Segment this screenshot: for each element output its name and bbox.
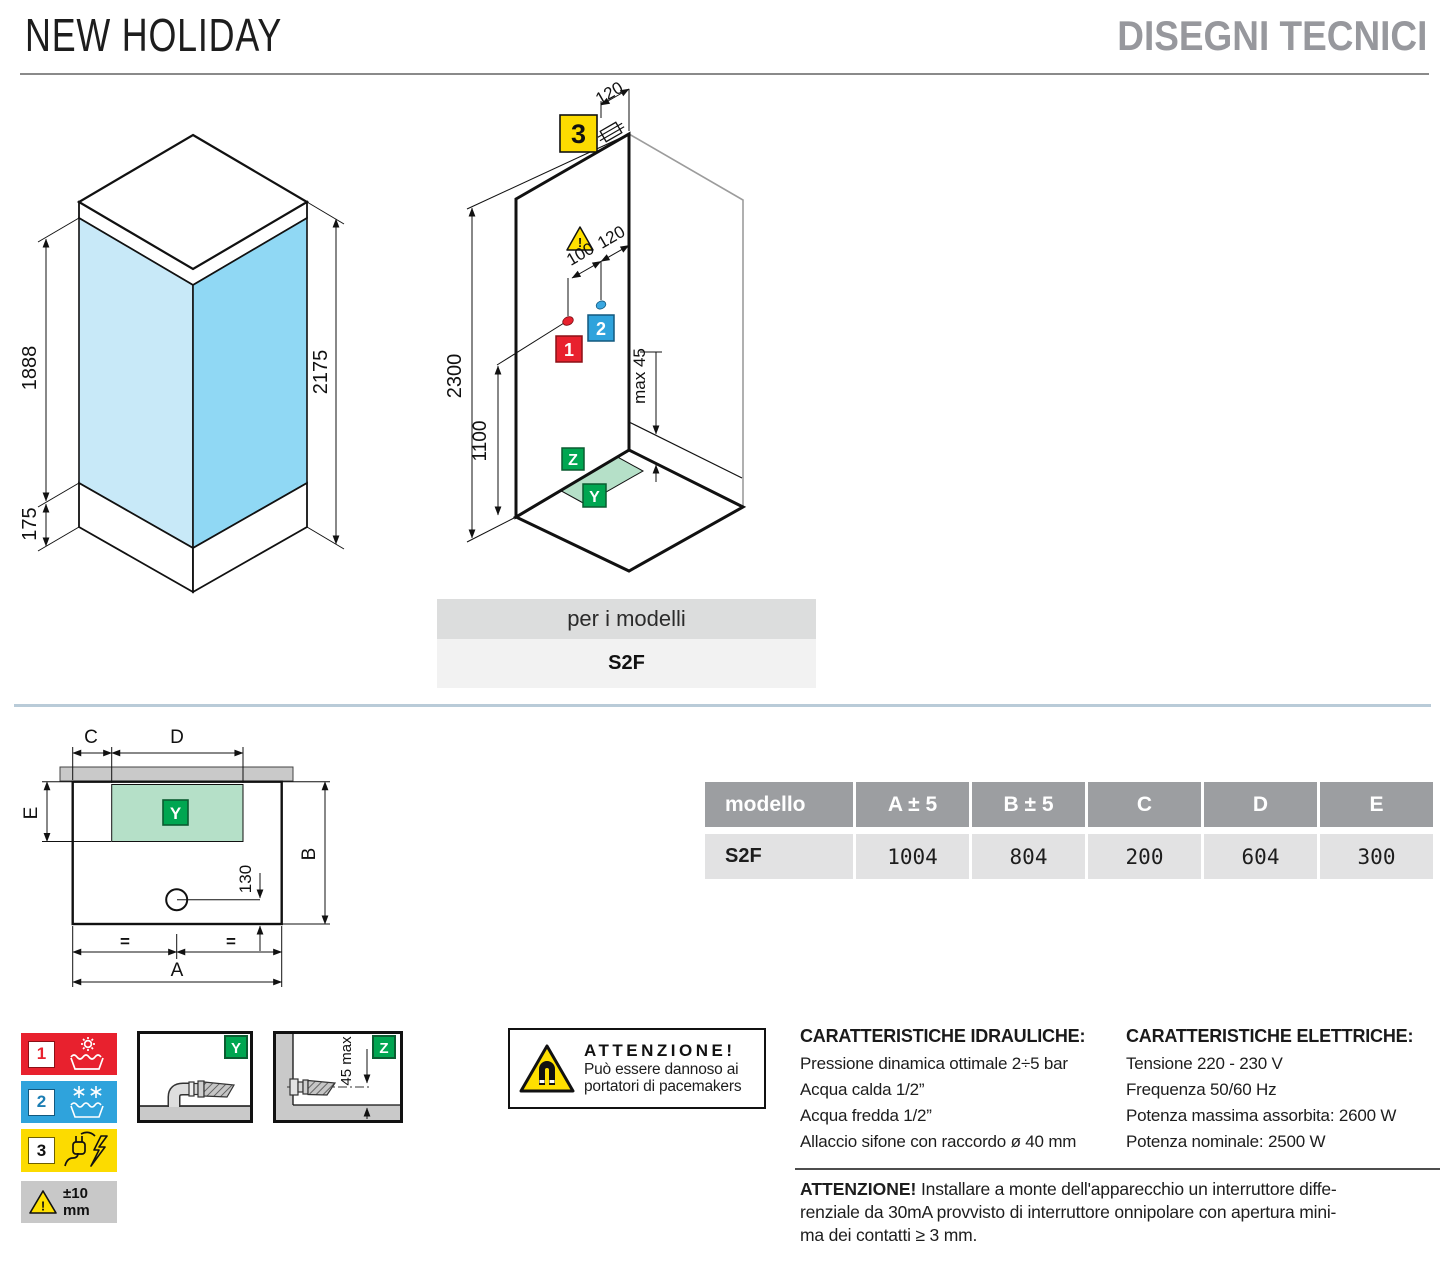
middle-divider bbox=[14, 704, 1431, 707]
z-connection-detail: 45 max Z bbox=[273, 1031, 403, 1123]
dim-drain-label: 130 bbox=[236, 865, 255, 893]
magnet-warning-icon bbox=[518, 1043, 576, 1095]
plan-view-drawing: Y C D E B 130 = = A bbox=[25, 723, 365, 1008]
hydraulic-spec-line: Acqua fredda 1/2” bbox=[800, 1103, 1130, 1129]
models-box-model: S2F bbox=[437, 639, 816, 688]
hydraulic-spec-line: Pressione dinamica ottimale 2÷5 bar bbox=[800, 1051, 1130, 1077]
electric-plug-icon bbox=[61, 1132, 113, 1170]
dim-electric-offset: 120 bbox=[592, 78, 626, 109]
dim-e-label: E bbox=[21, 807, 42, 820]
size-table: modello A ± 5 B ± 5 C D E S2F 1004 804 2… bbox=[705, 782, 1433, 879]
electrical-spec-line: Frequenza 50/60 Hz bbox=[1126, 1077, 1444, 1103]
floor-zone-badge-label: Y bbox=[589, 489, 600, 506]
legend-cold-number: 2 bbox=[28, 1089, 55, 1116]
y-connection-detail: Y bbox=[137, 1031, 253, 1123]
table-cell-b: 804 bbox=[972, 834, 1085, 879]
dim-glass-height: 1888 bbox=[19, 346, 41, 391]
dim-c-label: C bbox=[84, 727, 98, 748]
electrical-specs: CARATTERISTICHE ELETTRICHE: Tensione 220… bbox=[1126, 1026, 1444, 1155]
wall-zone-badge-label: Z bbox=[568, 452, 578, 469]
dim-wall-height: 2300 bbox=[444, 354, 466, 399]
table-header-a: A ± 5 bbox=[856, 782, 969, 827]
header-divider bbox=[20, 73, 1429, 75]
cabin-isometric-drawing: 1888 175 2175 bbox=[25, 100, 400, 615]
magnet-warning-line2: portatori di pacemakers bbox=[584, 1078, 741, 1095]
legend-hot-water: 1 bbox=[21, 1033, 117, 1075]
dim-a-label: A bbox=[171, 960, 184, 981]
models-box-label: per i modelli bbox=[437, 599, 816, 639]
hydraulic-spec-line: Acqua calda 1/2” bbox=[800, 1077, 1130, 1103]
table-header-c: C bbox=[1088, 782, 1201, 827]
table-header-modello: modello bbox=[705, 782, 853, 827]
hot-badge-label: 1 bbox=[564, 340, 574, 360]
legend-tolerance: ! ±10 mm bbox=[21, 1181, 117, 1223]
footer-warning-line2: renziale da 30mA provvisto di interrutto… bbox=[800, 1202, 1336, 1222]
footer-warning-line3: ma dei contatti ≥ 3 mm. bbox=[800, 1225, 977, 1245]
dim-b-label: B bbox=[299, 848, 320, 861]
dim-d-label: D bbox=[170, 727, 184, 748]
electric-badge-label: 3 bbox=[571, 119, 586, 149]
table-cell-d: 604 bbox=[1204, 834, 1317, 879]
dim-outlet-height: 1100 bbox=[470, 421, 491, 462]
electrical-spec-line: Potenza massima assorbita: 2600 W bbox=[1126, 1103, 1444, 1129]
tolerance-value: ±10 mm bbox=[63, 1185, 117, 1219]
hydraulic-specs-title: CARATTERISTICHE IDRAULICHE: bbox=[800, 1026, 1130, 1047]
legend-electric-number: 3 bbox=[28, 1137, 55, 1164]
legend-hot-number: 1 bbox=[28, 1041, 55, 1068]
hydraulic-spec-line: Allaccio sifone con raccordo ø 40 mm bbox=[800, 1129, 1130, 1155]
table-cell-model: S2F bbox=[705, 834, 853, 879]
magnet-warning-line1: Può essere dannoso ai bbox=[584, 1061, 741, 1078]
cold-badge-label: 2 bbox=[596, 319, 606, 339]
hot-water-icon bbox=[61, 1036, 113, 1072]
plan-zone-badge-label: Y bbox=[170, 804, 182, 823]
equal-right-label: = bbox=[226, 932, 236, 951]
footer-warning: ATTENZIONE! Installare a monte dell'appa… bbox=[800, 1178, 1445, 1247]
dim-tray-height: 175 bbox=[19, 507, 41, 540]
specs-divider bbox=[795, 1168, 1440, 1170]
table-header-d: D bbox=[1204, 782, 1317, 827]
y-detail-badge-label: Y bbox=[231, 1040, 241, 1057]
section-title: DISEGNI TECNICI bbox=[1117, 12, 1427, 60]
table-cell-a: 1004 bbox=[856, 834, 969, 879]
models-box: per i modelli S2F bbox=[437, 599, 816, 688]
page-title: NEW HOLIDAY bbox=[25, 8, 282, 62]
table-header-b: B ± 5 bbox=[972, 782, 1085, 827]
table-cell-c: 200 bbox=[1088, 834, 1201, 879]
z-detail-dim: 45 max bbox=[338, 1036, 355, 1086]
footer-warning-line1: Installare a monte dell'apparecchio un i… bbox=[916, 1179, 1336, 1199]
installation-drawing: 3 ! 1 2 Z Y 120 100 120 2300 1100 max 45 bbox=[430, 88, 960, 603]
footer-warning-bold: ATTENZIONE! bbox=[800, 1179, 916, 1199]
z-detail-badge-label: Z bbox=[379, 1040, 388, 1057]
table-header-e: E bbox=[1320, 782, 1433, 827]
table-cell-e: 300 bbox=[1320, 834, 1433, 879]
electrical-spec-line: Potenza nominale: 2500 W bbox=[1126, 1129, 1444, 1155]
tolerance-warning-icon: ! bbox=[28, 1188, 58, 1216]
legend-cold-water: 2 bbox=[21, 1081, 117, 1123]
dim-drain-max: max 45 bbox=[630, 348, 649, 404]
electrical-specs-title: CARATTERISTICHE ELETTRICHE: bbox=[1126, 1026, 1444, 1047]
magnet-warning-box: ATTENZIONE! Può essere dannoso ai portat… bbox=[508, 1028, 766, 1109]
hydraulic-specs: CARATTERISTICHE IDRAULICHE: Pressione di… bbox=[800, 1026, 1130, 1155]
side-wall-outline bbox=[629, 134, 743, 507]
plan-wall-bar bbox=[60, 767, 293, 781]
magnet-warning-title: ATTENZIONE! bbox=[584, 1042, 741, 1061]
cold-water-icon bbox=[61, 1084, 113, 1120]
equal-left-label: = bbox=[120, 932, 130, 951]
electrical-spec-line: Tensione 220 - 230 V bbox=[1126, 1051, 1444, 1077]
svg-text:!: ! bbox=[41, 1199, 45, 1214]
dim-total-height: 2175 bbox=[310, 350, 332, 395]
legend-electric: 3 bbox=[21, 1129, 117, 1172]
